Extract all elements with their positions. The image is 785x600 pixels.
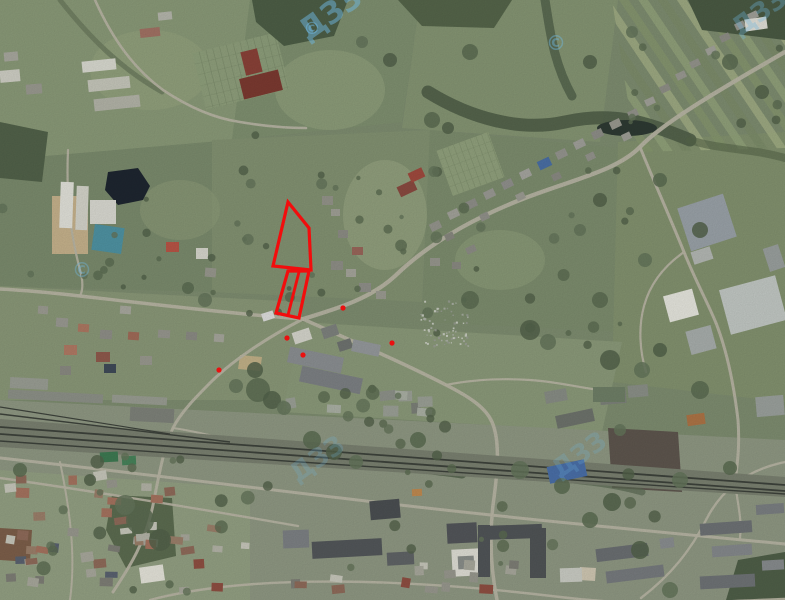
watermark-dzz: © — [72, 258, 92, 282]
satellite-map[interactable]: ДЗЗ©©©ДЗЗДЗЗДЗЗ — [0, 0, 785, 600]
grain-texture — [0, 0, 785, 600]
red-marker-dot[interactable] — [216, 367, 221, 372]
watermark-dzz: © — [304, 19, 321, 39]
red-marker-dot[interactable] — [300, 352, 305, 357]
watermark-dzz: © — [546, 31, 566, 55]
red-marker-dot[interactable] — [389, 340, 394, 345]
satellite-imagery-canvas[interactable]: ДЗЗ©©©ДЗЗДЗЗДЗЗ — [0, 0, 785, 600]
red-marker-dot[interactable] — [284, 335, 289, 340]
red-marker-dot[interactable] — [340, 305, 345, 310]
